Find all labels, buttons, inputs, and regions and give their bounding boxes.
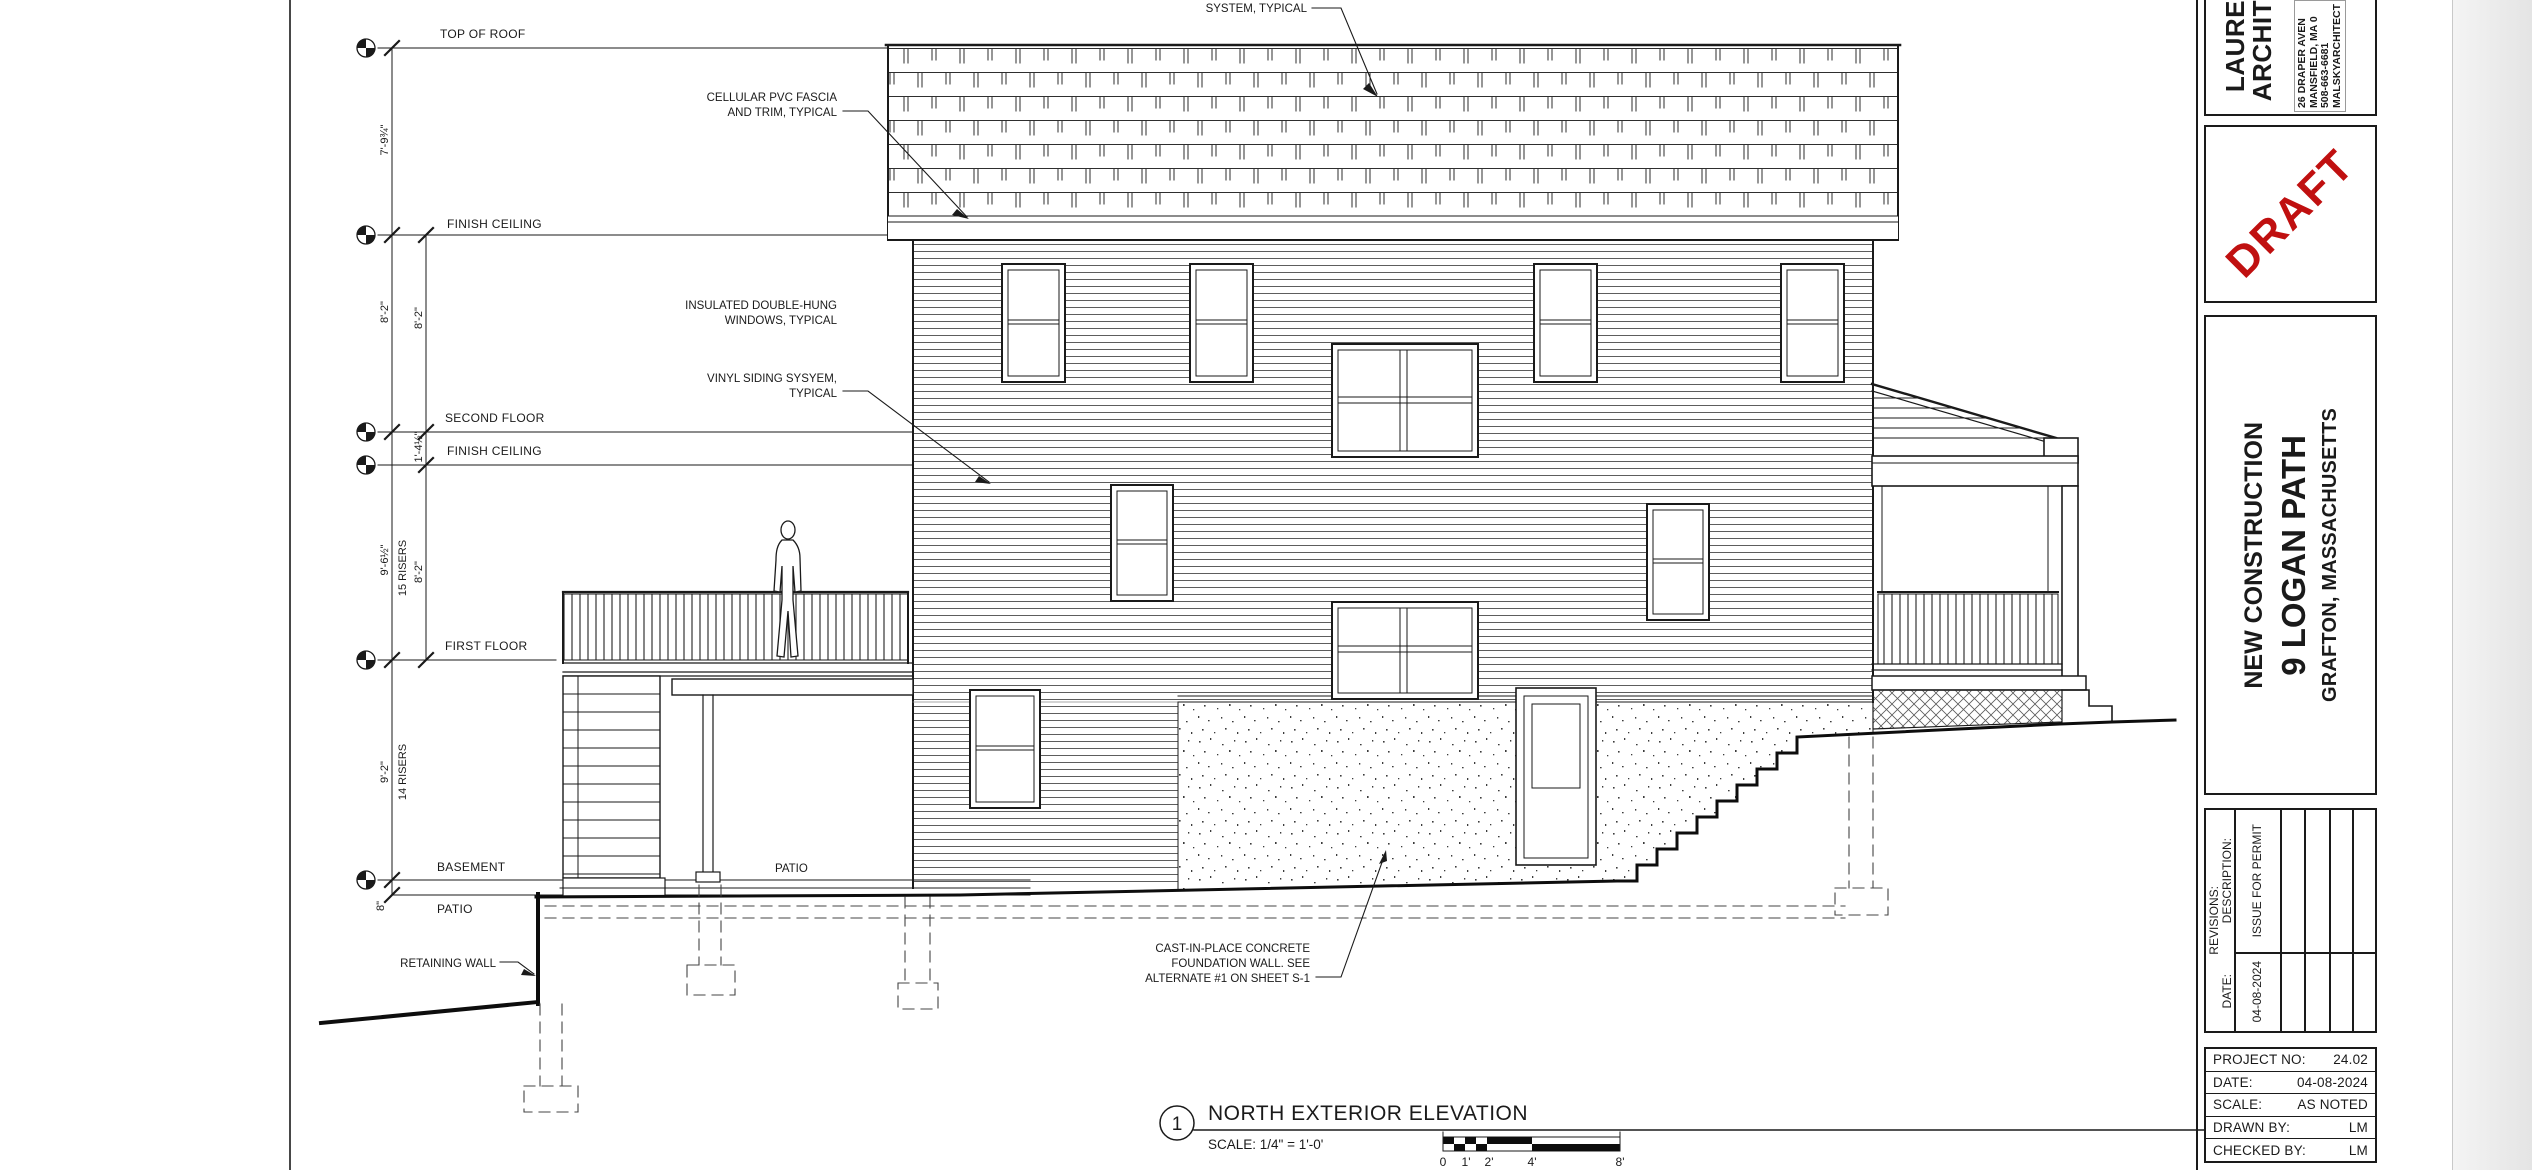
label-basement: BASEMENT (437, 860, 506, 874)
info-value: 04-08-2024 (2297, 1075, 2368, 1090)
info-label: DRAWN BY: (2213, 1120, 2290, 1135)
draft-stamp-box: DRAFT (2204, 125, 2377, 303)
info-row-checked-by: CHECKED BY: LM (2206, 1138, 2375, 1161)
window (1111, 485, 1173, 601)
revision-entry-description: ISSUE FOR PERMIT (2250, 824, 2264, 937)
scale-tick-2: 2' (1485, 1155, 1494, 1169)
annotation-windows-1: INSULATED DOUBLE-HUNG (685, 300, 837, 312)
window (1002, 264, 1065, 382)
architect-website: MALSKYARCHITECT (2332, 4, 2344, 108)
dimension-texts: 7'-9¾" 8'-2" 8'-2" 1'-4½" 9'-6½" 15 RISE… (375, 124, 425, 911)
architect-address-1: 26 DRAPER AVEN (2297, 4, 2309, 108)
label-top-of-roof: TOP OF ROOF (440, 27, 526, 41)
grade-line-left (321, 1002, 538, 1023)
dim-first-story: 9'-6½" (379, 544, 391, 575)
annotation-foundation-2: FOUNDATION WALL. SEE (1171, 958, 1310, 970)
revisions-description-label: DESCRIPTION: (2220, 838, 2234, 923)
info-row-date: DATE: 04-08-2024 (2206, 1071, 2375, 1094)
view-title: 1 NORTH EXTERIOR ELEVATION SCALE: 1/4" =… (1160, 1102, 2310, 1152)
drawing-sheet: TOP OF ROOF FINISH CEILING SECOND FLOOR … (0, 0, 2532, 1170)
info-label: DATE: (2213, 1075, 2253, 1090)
label-finish-ceiling-lower: FINISH CEILING (447, 444, 542, 458)
draft-stamp: DRAFT (2217, 140, 2365, 288)
basement-door (1516, 688, 1596, 865)
view-number: 1 (1172, 1114, 1183, 1135)
architect-name-line1: LAURE (2222, 0, 2249, 92)
label-patio-level: PATIO (437, 902, 473, 916)
info-label: SCALE: (2213, 1097, 2262, 1112)
architect-phone: 508-663-6681 (2320, 4, 2332, 108)
project-title-box: NEW CONSTRUCTION 9 LOGAN PATH GRAFTON, M… (2204, 315, 2377, 795)
window-large (1332, 602, 1478, 699)
dim-patio-step: 8" (375, 901, 387, 911)
window-large (1332, 344, 1478, 457)
view-title-text: NORTH EXTERIOR ELEVATION (1208, 1102, 1528, 1125)
window (1534, 264, 1597, 382)
revisions-box: REVISIONS: DESCRIPTION: DATE: ISSUE FOR … (2204, 808, 2377, 1033)
info-row-project-no: PROJECT NO: 24.02 (2206, 1049, 2375, 1071)
annotation-roof-system: SYSTEM, TYPICAL (1206, 3, 1308, 15)
revision-entry-date: 04-08-2024 (2250, 961, 2264, 1022)
basement-window (970, 690, 1040, 808)
architect-address-box: 26 DRAPER AVEN MANSFIELD, MA 0 508-663-6… (2294, 0, 2346, 112)
scale-tick-4: 4' (1528, 1155, 1537, 1169)
scale-tick-0: 0 (1440, 1155, 1447, 1169)
annotation-windows-2: WINDOWS, TYPICAL (725, 315, 838, 327)
scale-tick-1: 1' (1462, 1155, 1471, 1169)
dim-second-ceiling: 8'-2" (413, 307, 425, 329)
deck-stairs (563, 676, 665, 896)
window (1647, 504, 1709, 620)
architect-name-line2: ARCHIT (2249, 0, 2276, 101)
dim-basement-risers: 14 RISERS (397, 744, 409, 800)
info-label: CHECKED BY: (2213, 1143, 2306, 1158)
titleblock-border-line (2196, 0, 2198, 1170)
annotation-siding-2: TYPICAL (789, 388, 838, 400)
screened-porch (1872, 384, 2112, 729)
dim-basement-story: 9'-2" (379, 761, 391, 783)
info-row-drawn-by: DRAWN BY: LM (2206, 1116, 2375, 1139)
revisions-date-label: DATE: (2220, 974, 2234, 1008)
project-city: GRAFTON, MASSACHUSETTS (2319, 408, 2342, 702)
house-roof (886, 45, 1900, 240)
graphic-scale-bar: 0 1' 2' 4' 8' (1440, 1132, 1625, 1169)
window (1190, 264, 1253, 382)
info-value: LM (2349, 1143, 2368, 1158)
annotation-fascia-1: CELLULAR PVC FASCIA (707, 92, 838, 104)
window (1781, 264, 1844, 382)
label-finish-ceiling-upper: FINISH CEILING (447, 217, 542, 231)
annotation-foundation-1: CAST-IN-PLACE CONCRETE (1155, 943, 1310, 955)
architect-box: LAURE ARCHIT 26 DRAPER AVEN MANSFIELD, M… (2204, 0, 2377, 116)
dim-first-story-risers: 15 RISERS (397, 540, 409, 596)
level-labels: TOP OF ROOF FINISH CEILING SECOND FLOOR … (437, 27, 545, 916)
dim-first-ceiling: 8'-2" (413, 561, 425, 583)
view-scale-note: SCALE: 1/4" = 1'-0' (1208, 1137, 1323, 1152)
annotation-patio: PATIO (775, 863, 808, 875)
label-first-floor: FIRST FLOOR (445, 639, 527, 653)
scale-tick-8: 8' (1616, 1155, 1625, 1169)
annotation-fascia-2: AND TRIM, TYPICAL (728, 107, 838, 119)
project-address: 9 LOGAN PATH (2275, 435, 2313, 676)
dim-floor-depth: 1'-4½" (413, 431, 425, 462)
info-value: 24.02 (2333, 1052, 2368, 1067)
annotation-retaining-wall: RETAINING WALL (400, 958, 496, 970)
annotation-foundation-3: ALTERNATE #1 ON SHEET S-1 (1145, 973, 1310, 985)
project-info-table: PROJECT NO: 24.02 DATE: 04-08-2024 SCALE… (2204, 1047, 2377, 1163)
info-value: AS NOTED (2297, 1097, 2368, 1112)
info-label: PROJECT NO: (2213, 1052, 2306, 1067)
info-row-scale: SCALE: AS NOTED (2206, 1093, 2375, 1116)
annotation-siding-1: VINYL SIDING SYSYEM, (707, 373, 837, 385)
elevation-drawing: TOP OF ROOF FINISH CEILING SECOND FLOOR … (0, 0, 2532, 1170)
project-type: NEW CONSTRUCTION (2240, 422, 2269, 689)
dim-second-story: 8'-2" (379, 301, 391, 323)
dim-roof-height: 7'-9¾" (379, 124, 391, 155)
level-markers (357, 39, 375, 889)
info-value: LM (2349, 1120, 2368, 1135)
viewer-background (2452, 0, 2532, 1170)
label-second-floor: SECOND FLOOR (445, 411, 545, 425)
